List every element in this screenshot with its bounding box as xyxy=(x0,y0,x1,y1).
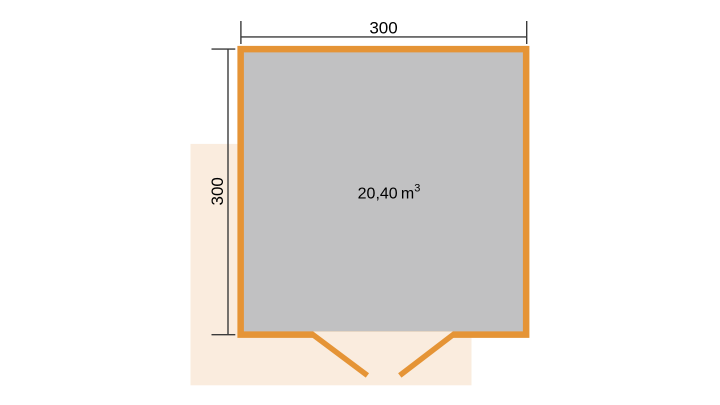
svg-text:300: 300 xyxy=(369,18,397,37)
svg-text:20,40 m3: 20,40 m3 xyxy=(358,183,421,203)
svg-text:300: 300 xyxy=(208,177,227,205)
